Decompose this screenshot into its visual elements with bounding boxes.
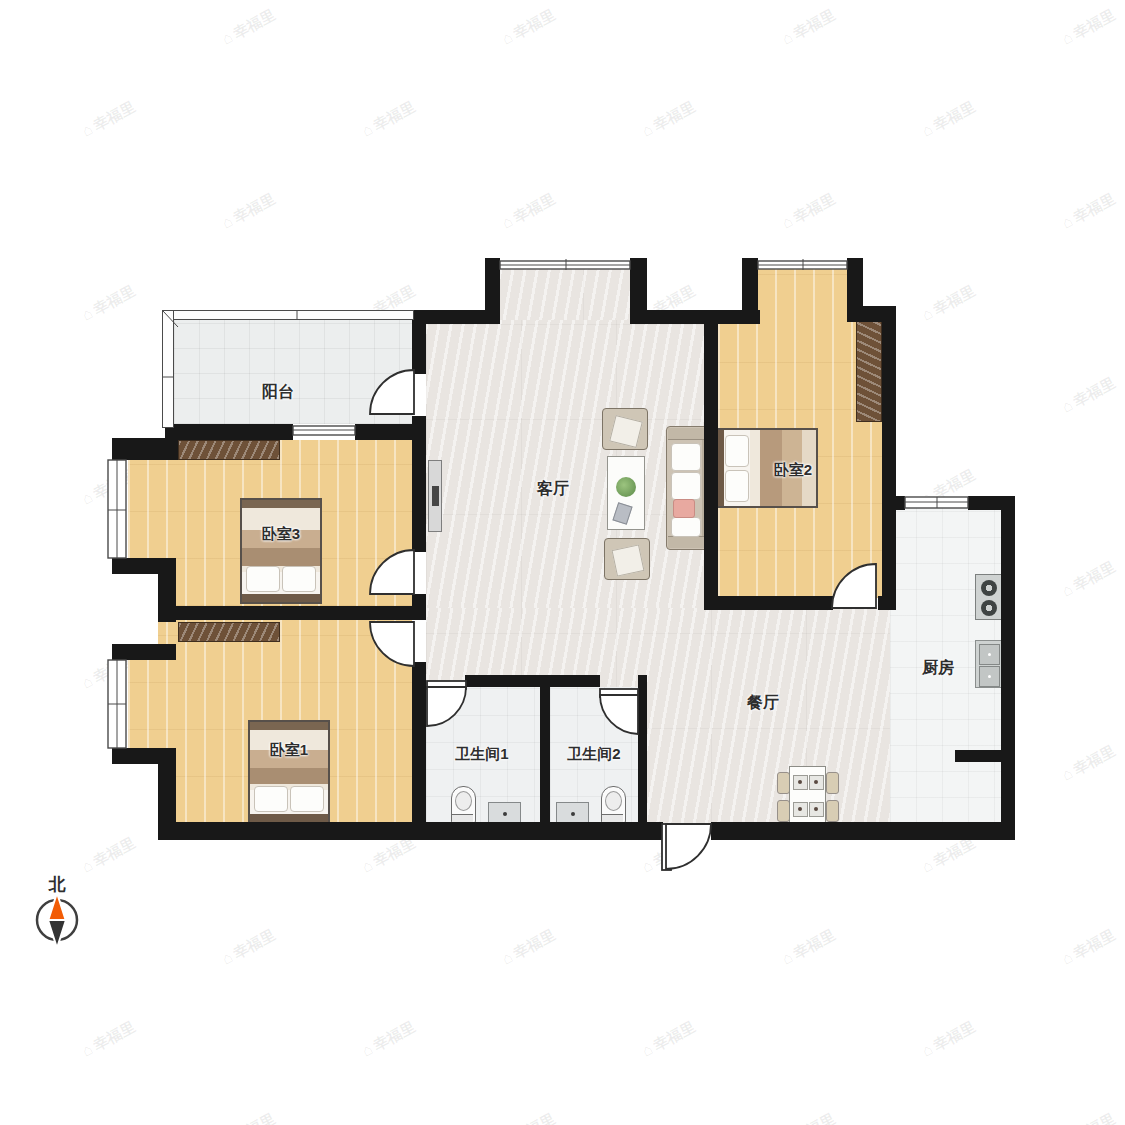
- bathroom2-label: 卫生间2: [567, 745, 620, 764]
- bedroom2-label: 卧室2: [774, 461, 812, 480]
- bedroom2-door: [832, 564, 876, 608]
- compass-north-label: 北: [49, 873, 66, 896]
- bathroom1-label: 卫生间1: [455, 745, 508, 764]
- floor-plan: ⌂幸福里⌂幸福里⌂幸福里⌂幸福里⌂幸福里⌂幸福里⌂幸福里⌂幸福里⌂幸福里⌂幸福里…: [0, 0, 1125, 1125]
- bedroom1-door: [370, 622, 414, 666]
- kitchen-label: 厨房: [922, 658, 954, 679]
- balcony-label: 阳台: [262, 382, 294, 403]
- plan-overlay: [0, 0, 1125, 1125]
- compass-icon: [37, 893, 77, 948]
- bedroom3-door: [370, 550, 414, 594]
- living-room-label: 客厅: [537, 479, 569, 500]
- bedroom1-label: 卧室1: [270, 741, 308, 760]
- bathroom1-door: [427, 687, 466, 726]
- entry-door: [666, 824, 711, 869]
- bedroom3-label: 卧室3: [262, 525, 300, 544]
- bathroom2-door: [600, 695, 638, 734]
- balcony-door: [370, 370, 414, 414]
- dining-room-label: 餐厅: [747, 693, 779, 714]
